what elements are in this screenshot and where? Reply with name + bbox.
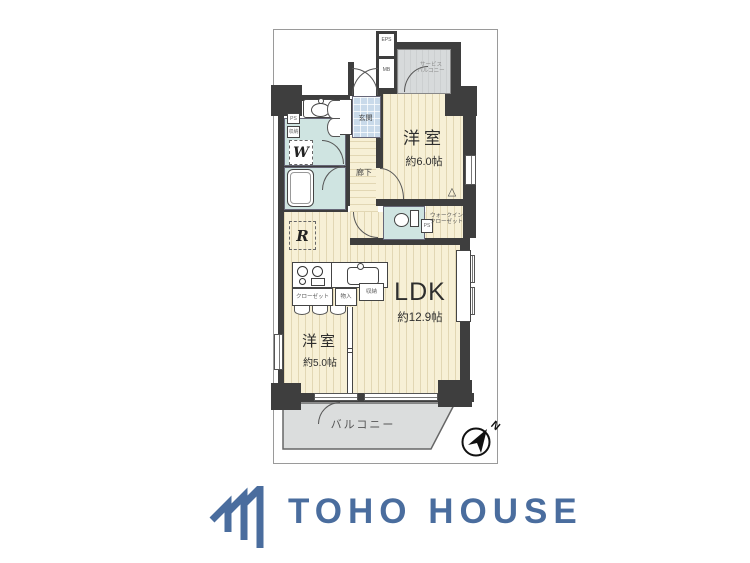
bedroom1-name: 洋室	[403, 124, 445, 149]
closet-box: クローゼット	[292, 288, 333, 306]
wic-label: ウォークイン クローゼット	[430, 213, 462, 226]
wall-pillar-bottom-right	[438, 380, 472, 407]
door-triangle-marker: △	[444, 186, 460, 199]
wall-storage-box: 収納	[287, 126, 300, 138]
stove-burner-2	[312, 266, 323, 277]
mb-label: MB	[377, 68, 396, 74]
toilet-tank	[410, 210, 419, 227]
bedroom1-size: 約6.0帖	[405, 153, 442, 169]
pipe-space-label: PS	[288, 114, 299, 124]
eps-label: EPS	[377, 38, 396, 44]
balcony-label: バルコニー	[308, 419, 418, 432]
bathtub	[287, 169, 314, 207]
service-balcony-label: サービス バルコニー	[410, 62, 452, 75]
window-bedroom1-right	[465, 155, 476, 185]
hallway-label: 廊下	[350, 168, 378, 177]
closet-label: クローゼット	[293, 289, 332, 305]
wall-storage-label: 収納	[288, 127, 299, 138]
toilet-bowl	[394, 213, 409, 227]
wall-pillar-bottom-left	[271, 383, 301, 410]
fridge-space: R	[289, 221, 316, 250]
washer-label: W	[293, 145, 309, 161]
stove-burner-1	[297, 266, 308, 277]
shoe-cabinet-door-bottom	[327, 118, 340, 137]
bedroom2-name: 洋室	[302, 330, 338, 351]
service-balcony-label-line2: バルコニー	[417, 68, 444, 74]
shoe-cabinet-door-top	[327, 100, 340, 119]
ldk-size: 約12.9帖	[397, 309, 442, 325]
bedroom2-size: 約5.0帖	[303, 354, 337, 369]
storage1-label: 物入	[336, 289, 356, 305]
wic-label-line2: クローゼット	[430, 219, 463, 225]
closet-door-arc-2	[312, 306, 328, 315]
entrance-label: 玄関	[352, 115, 379, 123]
fridge-label: R	[296, 227, 308, 245]
storage-box-1: 物入	[335, 288, 357, 306]
window-bedroom2-left	[274, 334, 283, 370]
bedroom1-label: 洋室 約6.0帖	[388, 122, 460, 170]
wall-bedroom1-bottom	[376, 199, 470, 206]
window-bedroom2-balcony	[314, 393, 358, 401]
closet-door-arc-1	[294, 306, 310, 315]
logo-text: TOHO HOUSE	[288, 492, 588, 532]
window-ldk-balcony	[364, 393, 438, 401]
logo-mark-icon	[204, 486, 282, 550]
floorplan-image: EPS MB サービス バルコニー 玄関 PS 収納 W 廊下 洋室 約6.0帖	[0, 0, 750, 563]
ldk-label: LDK 約12.9帖	[378, 276, 462, 326]
ldk-name: LDK	[394, 278, 446, 307]
kitchen-faucet	[357, 263, 364, 270]
closet-door-arc-3	[330, 306, 346, 315]
pipe-space-box: PS	[287, 113, 300, 124]
stove-burner-3	[299, 278, 306, 285]
bedroom2-label: 洋室 約5.0帖	[290, 326, 350, 372]
shoe-cabinet	[339, 99, 352, 135]
wall-ldk-right-bottom	[460, 320, 470, 382]
washer-space: W	[289, 140, 313, 165]
stove-grill	[311, 278, 325, 286]
